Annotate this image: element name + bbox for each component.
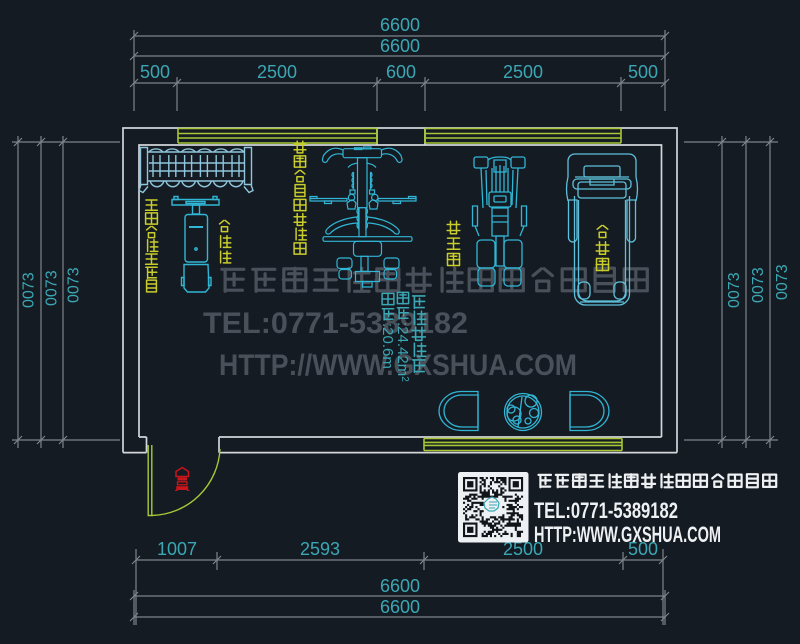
- svg-text:HTTP:WWW.GXSHUA.COM: HTTP:WWW.GXSHUA.COM: [534, 522, 721, 547]
- svg-text:6600: 6600: [380, 36, 420, 56]
- svg-text:0073: 0073: [21, 272, 38, 308]
- svg-text:0073: 0073: [44, 270, 61, 306]
- svg-text:6600: 6600: [380, 576, 420, 596]
- svg-text:500: 500: [140, 62, 170, 82]
- svg-text:600: 600: [386, 62, 416, 82]
- svg-text:1007: 1007: [157, 539, 197, 559]
- svg-text:0073: 0073: [726, 272, 743, 308]
- svg-text:2500: 2500: [257, 62, 297, 82]
- svg-text:6600: 6600: [380, 15, 420, 35]
- svg-text:TEL:0771-5389182: TEL:0771-5389182: [534, 498, 678, 523]
- svg-text:2500: 2500: [503, 62, 543, 82]
- svg-text:0073: 0073: [66, 267, 83, 303]
- svg-text:500: 500: [628, 62, 658, 82]
- svg-text::20.6m: :20.6m: [379, 323, 396, 369]
- svg-text:6600: 6600: [380, 597, 420, 617]
- svg-text:2593: 2593: [300, 539, 340, 559]
- svg-text:TEL:0771-5389182: TEL:0771-5389182: [203, 307, 468, 340]
- svg-text:0073: 0073: [750, 267, 767, 303]
- svg-text:0073: 0073: [774, 264, 791, 300]
